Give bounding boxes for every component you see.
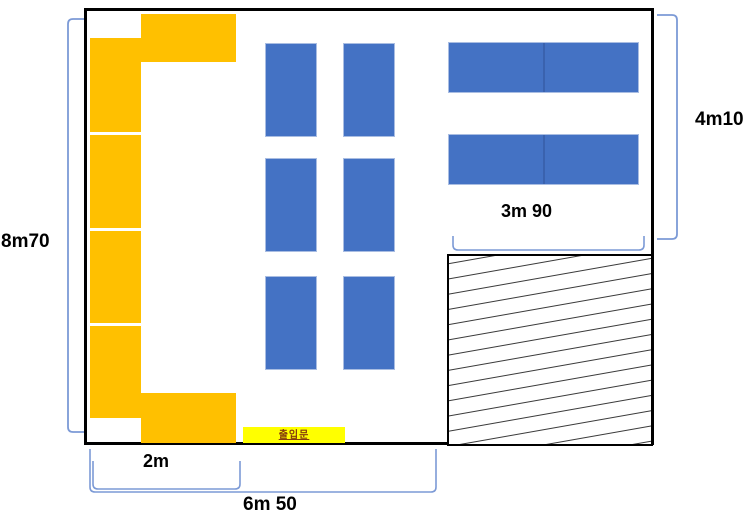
- desk-divider-line: [543, 135, 545, 184]
- orange-counter-segment: [90, 38, 141, 132]
- diagonal-hatch-pattern: [449, 256, 651, 444]
- floor-plan-diagram: 출입문 8m70 4m10 3m 90 2m 6m 50: [0, 0, 750, 529]
- paired-desk-table: [448, 42, 639, 93]
- desk-table: [265, 276, 317, 370]
- desk-table: [343, 158, 395, 252]
- desk-table: [265, 43, 317, 137]
- desk-divider-line: [543, 43, 545, 92]
- dimension-label-right-height: 4m10: [695, 109, 744, 130]
- orange-counter-segment: [90, 231, 141, 323]
- desk-table: [265, 158, 317, 252]
- bracket-left-8m70: [68, 19, 84, 432]
- orange-counter-bottom: [141, 393, 236, 443]
- dimension-label-bottom-width: 6m 50: [243, 494, 297, 515]
- door-label: 출입문: [243, 427, 345, 443]
- orange-counter-segment: [90, 326, 141, 418]
- dimension-label-right-width: 3m 90: [501, 201, 552, 222]
- desk-table: [343, 43, 395, 137]
- dimension-label-left-height: 8m70: [1, 231, 50, 252]
- hatched-area: [447, 254, 653, 446]
- orange-counter-top: [141, 14, 236, 62]
- paired-desk-table: [448, 134, 639, 185]
- bracket-right-4m10: [657, 15, 677, 239]
- door-label-text: 출입문: [279, 430, 310, 441]
- orange-counter-segment: [90, 135, 141, 228]
- bracket-bottom-6m50: [90, 449, 436, 492]
- dimension-label-left-width: 2m: [143, 451, 169, 472]
- desk-table: [343, 276, 395, 370]
